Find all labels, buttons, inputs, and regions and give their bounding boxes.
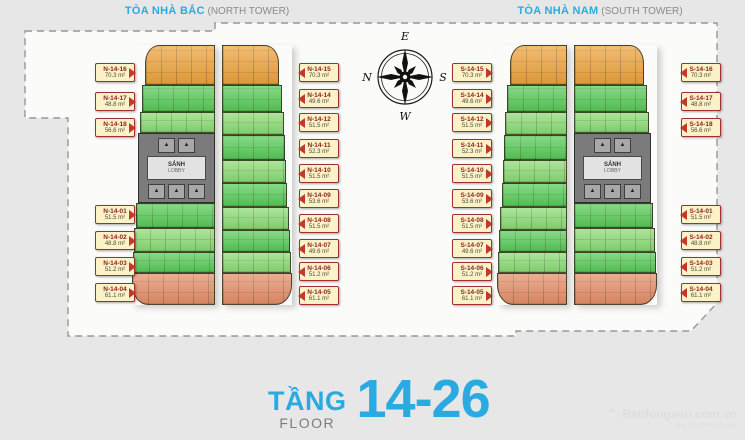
watermark-sub: by PropertyGuru	[607, 422, 737, 430]
unit-shape	[574, 85, 647, 112]
unit-area: 51.2 m²	[97, 267, 133, 274]
north-tower-title: TÒA NHÀ BẮC	[125, 5, 205, 17]
lobby: SẢNH LOBBY	[583, 156, 642, 180]
unit-area: 70.3 m²	[97, 73, 133, 80]
unit-area: 61.1 m²	[301, 296, 337, 303]
south-tower-east-wing: ▲ ▲ SẢNH LOBBY ▲ ▲ ▲	[574, 45, 657, 305]
unit-area: 51.5 m²	[683, 215, 719, 222]
unit-code: N-14-07	[301, 242, 337, 249]
unit-label: S-14-1856.6 m²	[681, 118, 721, 137]
unit-label: S-14-0749.6 m²	[452, 239, 492, 258]
unit-shape	[574, 112, 649, 133]
unit-label: N-14-0248.8 m²	[95, 231, 135, 250]
unit-code: S-14-10	[454, 167, 490, 174]
unit-code: S-14-08	[454, 217, 490, 224]
unit-area: 49.6 m²	[301, 99, 337, 106]
unit-shape	[499, 230, 567, 252]
unit-code: N-14-16	[97, 66, 133, 73]
north-tower-west-wing: ▲ ▲ SẢNH LOBBY ▲ ▲ ▲	[132, 45, 215, 305]
unit-shape	[574, 273, 657, 305]
lobby: SẢNH LOBBY	[147, 156, 206, 180]
unit-area: 51.2 m²	[301, 272, 337, 279]
unit-area: 49.6 m²	[301, 249, 337, 256]
unit-area: 51.5 m²	[97, 215, 133, 222]
unit-shape	[507, 85, 567, 112]
unit-code: S-14-03	[683, 260, 719, 267]
unit-area: 49.6 m²	[454, 249, 490, 256]
south-tower-subtitle: (SOUTH TOWER)	[599, 6, 683, 17]
unit-code: N-14-14	[301, 92, 337, 99]
unit-code: S-14-17	[683, 95, 719, 102]
unit-area: 48.8 m²	[683, 102, 719, 109]
unit-area: 56.6 m²	[683, 128, 719, 135]
unit-area: 51.2 m²	[683, 267, 719, 274]
unit-label: N-14-1449.6 m²	[299, 89, 339, 108]
unit-area: 53.6 m²	[454, 199, 490, 206]
unit-code: N-14-08	[301, 217, 337, 224]
unit-shape	[510, 45, 567, 85]
elevator-icon: ▲	[178, 138, 195, 153]
unit-code: N-14-03	[97, 260, 133, 267]
unit-shape	[500, 207, 567, 230]
unit-code: S-14-09	[454, 192, 490, 199]
unit-shape	[145, 45, 215, 85]
unit-area: 70.3 m²	[683, 73, 719, 80]
watermark-name: Batdongsan.com.vn	[622, 408, 737, 421]
unit-shape	[503, 160, 567, 183]
unit-code: N-14-15	[301, 66, 337, 73]
north-core: ▲ ▲ SẢNH LOBBY ▲ ▲ ▲	[138, 133, 215, 203]
lobby-sublabel: LOBBY	[168, 169, 185, 175]
unit-code: N-14-01	[97, 208, 133, 215]
unit-area: 61.1 m²	[97, 293, 133, 300]
unit-label: S-14-0953.6 m²	[452, 189, 492, 208]
unit-area: 51.5 m²	[454, 123, 490, 130]
unit-label: N-14-0651.2 m²	[299, 262, 339, 281]
unit-code: N-14-12	[301, 116, 337, 123]
south-tower-title: TÒA NHÀ NAM	[517, 5, 598, 17]
unit-shape	[222, 45, 279, 85]
unit-area: 53.6 m²	[301, 199, 337, 206]
unit-label: N-14-1670.3 m²	[95, 63, 135, 82]
unit-label: N-14-1570.3 m²	[299, 63, 339, 82]
unit-label: S-14-0561.1 m²	[452, 286, 492, 305]
unit-label: N-14-1748.8 m²	[95, 92, 135, 111]
unit-area: 51.5 m²	[454, 224, 490, 231]
south-core: ▲ ▲ SẢNH LOBBY ▲ ▲ ▲	[574, 133, 651, 203]
unit-label: S-14-1748.8 m²	[681, 92, 721, 111]
unit-label: S-14-0151.5 m²	[681, 205, 721, 224]
unit-label: N-14-0461.1 m²	[95, 283, 135, 302]
unit-area: 48.8 m²	[683, 241, 719, 248]
unit-code: S-14-01	[683, 208, 719, 215]
unit-shape	[505, 112, 567, 135]
unit-label: S-14-1670.3 m²	[681, 63, 721, 82]
unit-shape	[222, 207, 289, 230]
unit-area: 48.8 m²	[97, 241, 133, 248]
elevator-row: ▲ ▲ ▲	[575, 180, 650, 202]
unit-shape	[132, 273, 215, 305]
unit-code: S-14-18	[683, 121, 719, 128]
unit-area: 61.1 m²	[454, 296, 490, 303]
unit-code: S-14-11	[454, 142, 490, 149]
compass-east-label: E	[400, 30, 409, 43]
unit-area: 70.3 m²	[454, 73, 490, 80]
unit-code: N-14-09	[301, 192, 337, 199]
lobby-sublabel: LOBBY	[604, 169, 621, 175]
unit-label: N-14-1251.5 m²	[299, 113, 339, 132]
elevator-icon: ▲	[614, 138, 631, 153]
unit-label: S-14-0461.1 m²	[681, 283, 721, 302]
south-tower-header: TÒA NHÀ NAM (SOUTH TOWER)	[475, 5, 725, 17]
unit-shape	[222, 183, 287, 207]
unit-shape	[222, 273, 292, 305]
compass-north-label: N	[361, 71, 372, 84]
unit-code: N-14-17	[97, 95, 133, 102]
unit-code: S-14-16	[683, 66, 719, 73]
elevator-icon: ▲	[604, 184, 621, 199]
watermark-row: ⌃ Batdongsan.com.vn	[607, 407, 737, 422]
north-tower-east-wing	[222, 45, 292, 305]
north-tower-header: TÒA NHÀ BẮC (NORTH TOWER)	[82, 5, 332, 17]
unit-area: 51.5 m²	[301, 123, 337, 130]
unit-shape	[504, 135, 567, 160]
south-tower-plan: ▲ ▲ SẢNH LOBBY ▲ ▲ ▲	[497, 45, 657, 305]
elevator-icon: ▲	[188, 184, 205, 199]
floor-title-words: TẦNG FLOOR	[268, 388, 347, 432]
unit-label: S-14-0248.8 m²	[681, 231, 721, 250]
elevator-icon: ▲	[584, 184, 601, 199]
unit-label: N-14-0749.6 m²	[299, 239, 339, 258]
floor-range: 14-26	[357, 374, 490, 425]
unit-area: 56.6 m²	[97, 128, 133, 135]
unit-shape	[502, 183, 567, 207]
unit-code: N-14-11	[301, 142, 337, 149]
floor-title: TẦNG FLOOR 14-26	[268, 374, 490, 432]
unit-shape	[574, 228, 655, 252]
compass-south-label: S	[439, 71, 447, 84]
floor-plan-page: TÒA NHÀ BẮC (NORTH TOWER) TÒA NHÀ NAM (S…	[0, 0, 745, 440]
unit-shape	[136, 203, 215, 228]
unit-area: 70.3 m²	[301, 73, 337, 80]
unit-code: S-14-06	[454, 265, 490, 272]
unit-area: 52.3 m²	[454, 149, 490, 156]
compass-rose-icon: E N S W	[360, 28, 450, 123]
watermark-logo-icon: ⌃	[607, 407, 619, 422]
unit-label: N-14-0561.1 m²	[299, 286, 339, 305]
unit-shape	[222, 160, 286, 183]
unit-code: S-14-02	[683, 234, 719, 241]
unit-code: N-14-02	[97, 234, 133, 241]
unit-area: 48.8 m²	[97, 102, 133, 109]
unit-shape	[222, 85, 282, 112]
unit-label: N-14-0953.6 m²	[299, 189, 339, 208]
elevator-icon: ▲	[624, 184, 641, 199]
unit-code: N-14-04	[97, 286, 133, 293]
unit-label: S-14-1449.6 m²	[452, 89, 492, 108]
unit-label: S-14-1152.3 m²	[452, 139, 492, 158]
watermark: ⌃ Batdongsan.com.vn by PropertyGuru	[607, 407, 737, 430]
unit-label: N-14-1051.5 m²	[299, 164, 339, 183]
unit-shape	[222, 112, 284, 135]
unit-label: S-14-1570.3 m²	[452, 63, 492, 82]
unit-code: S-14-14	[454, 92, 490, 99]
floor-label-en: FLOOR	[279, 415, 335, 432]
unit-shape	[140, 112, 215, 133]
north-tower-subtitle: (NORTH TOWER)	[205, 6, 289, 17]
unit-label: N-14-1856.6 m²	[95, 118, 135, 137]
unit-area: 52.3 m²	[301, 149, 337, 156]
south-tower-west-wing	[497, 45, 567, 305]
unit-shape	[574, 252, 656, 273]
unit-code: S-14-04	[683, 286, 719, 293]
unit-shape	[222, 135, 285, 160]
unit-code: S-14-07	[454, 242, 490, 249]
unit-code: N-14-05	[301, 289, 337, 296]
unit-label: N-14-1152.3 m²	[299, 139, 339, 158]
unit-code: S-14-05	[454, 289, 490, 296]
unit-label: S-14-1051.5 m²	[452, 164, 492, 183]
unit-area: 61.1 m²	[683, 293, 719, 300]
unit-shape	[498, 252, 567, 273]
unit-shape	[497, 273, 567, 305]
unit-label: N-14-0851.5 m²	[299, 214, 339, 233]
floor-label-vn: TẦNG	[268, 388, 347, 415]
unit-label: S-14-0851.5 m²	[452, 214, 492, 233]
unit-shape	[134, 228, 215, 252]
unit-area: 51.5 m²	[301, 224, 337, 231]
unit-area: 49.6 m²	[454, 99, 490, 106]
unit-label: S-14-1251.5 m²	[452, 113, 492, 132]
unit-area: 51.2 m²	[454, 272, 490, 279]
unit-area: 51.5 m²	[301, 174, 337, 181]
unit-shape	[222, 230, 290, 252]
unit-shape	[574, 45, 644, 85]
elevator-row: ▲ ▲ ▲	[139, 180, 214, 202]
unit-shape	[574, 203, 653, 228]
unit-area: 51.5 m²	[454, 174, 490, 181]
unit-label: S-14-0351.2 m²	[681, 257, 721, 276]
unit-code: S-14-15	[454, 66, 490, 73]
unit-code: N-14-10	[301, 167, 337, 174]
unit-code: N-14-06	[301, 265, 337, 272]
elevator-row: ▲ ▲	[575, 134, 650, 156]
unit-shape	[133, 252, 215, 273]
unit-code: N-14-18	[97, 121, 133, 128]
elevator-icon: ▲	[168, 184, 185, 199]
unit-label: N-14-0151.5 m²	[95, 205, 135, 224]
elevator-row: ▲ ▲	[139, 134, 214, 156]
elevator-icon: ▲	[594, 138, 611, 153]
elevator-icon: ▲	[158, 138, 175, 153]
unit-shape	[222, 252, 291, 273]
unit-label: N-14-0351.2 m²	[95, 257, 135, 276]
compass-west-label: W	[399, 110, 412, 123]
unit-shape	[142, 85, 215, 112]
elevator-icon: ▲	[148, 184, 165, 199]
unit-label: S-14-0651.2 m²	[452, 262, 492, 281]
north-tower-plan: ▲ ▲ SẢNH LOBBY ▲ ▲ ▲	[132, 45, 292, 305]
unit-code: S-14-12	[454, 116, 490, 123]
